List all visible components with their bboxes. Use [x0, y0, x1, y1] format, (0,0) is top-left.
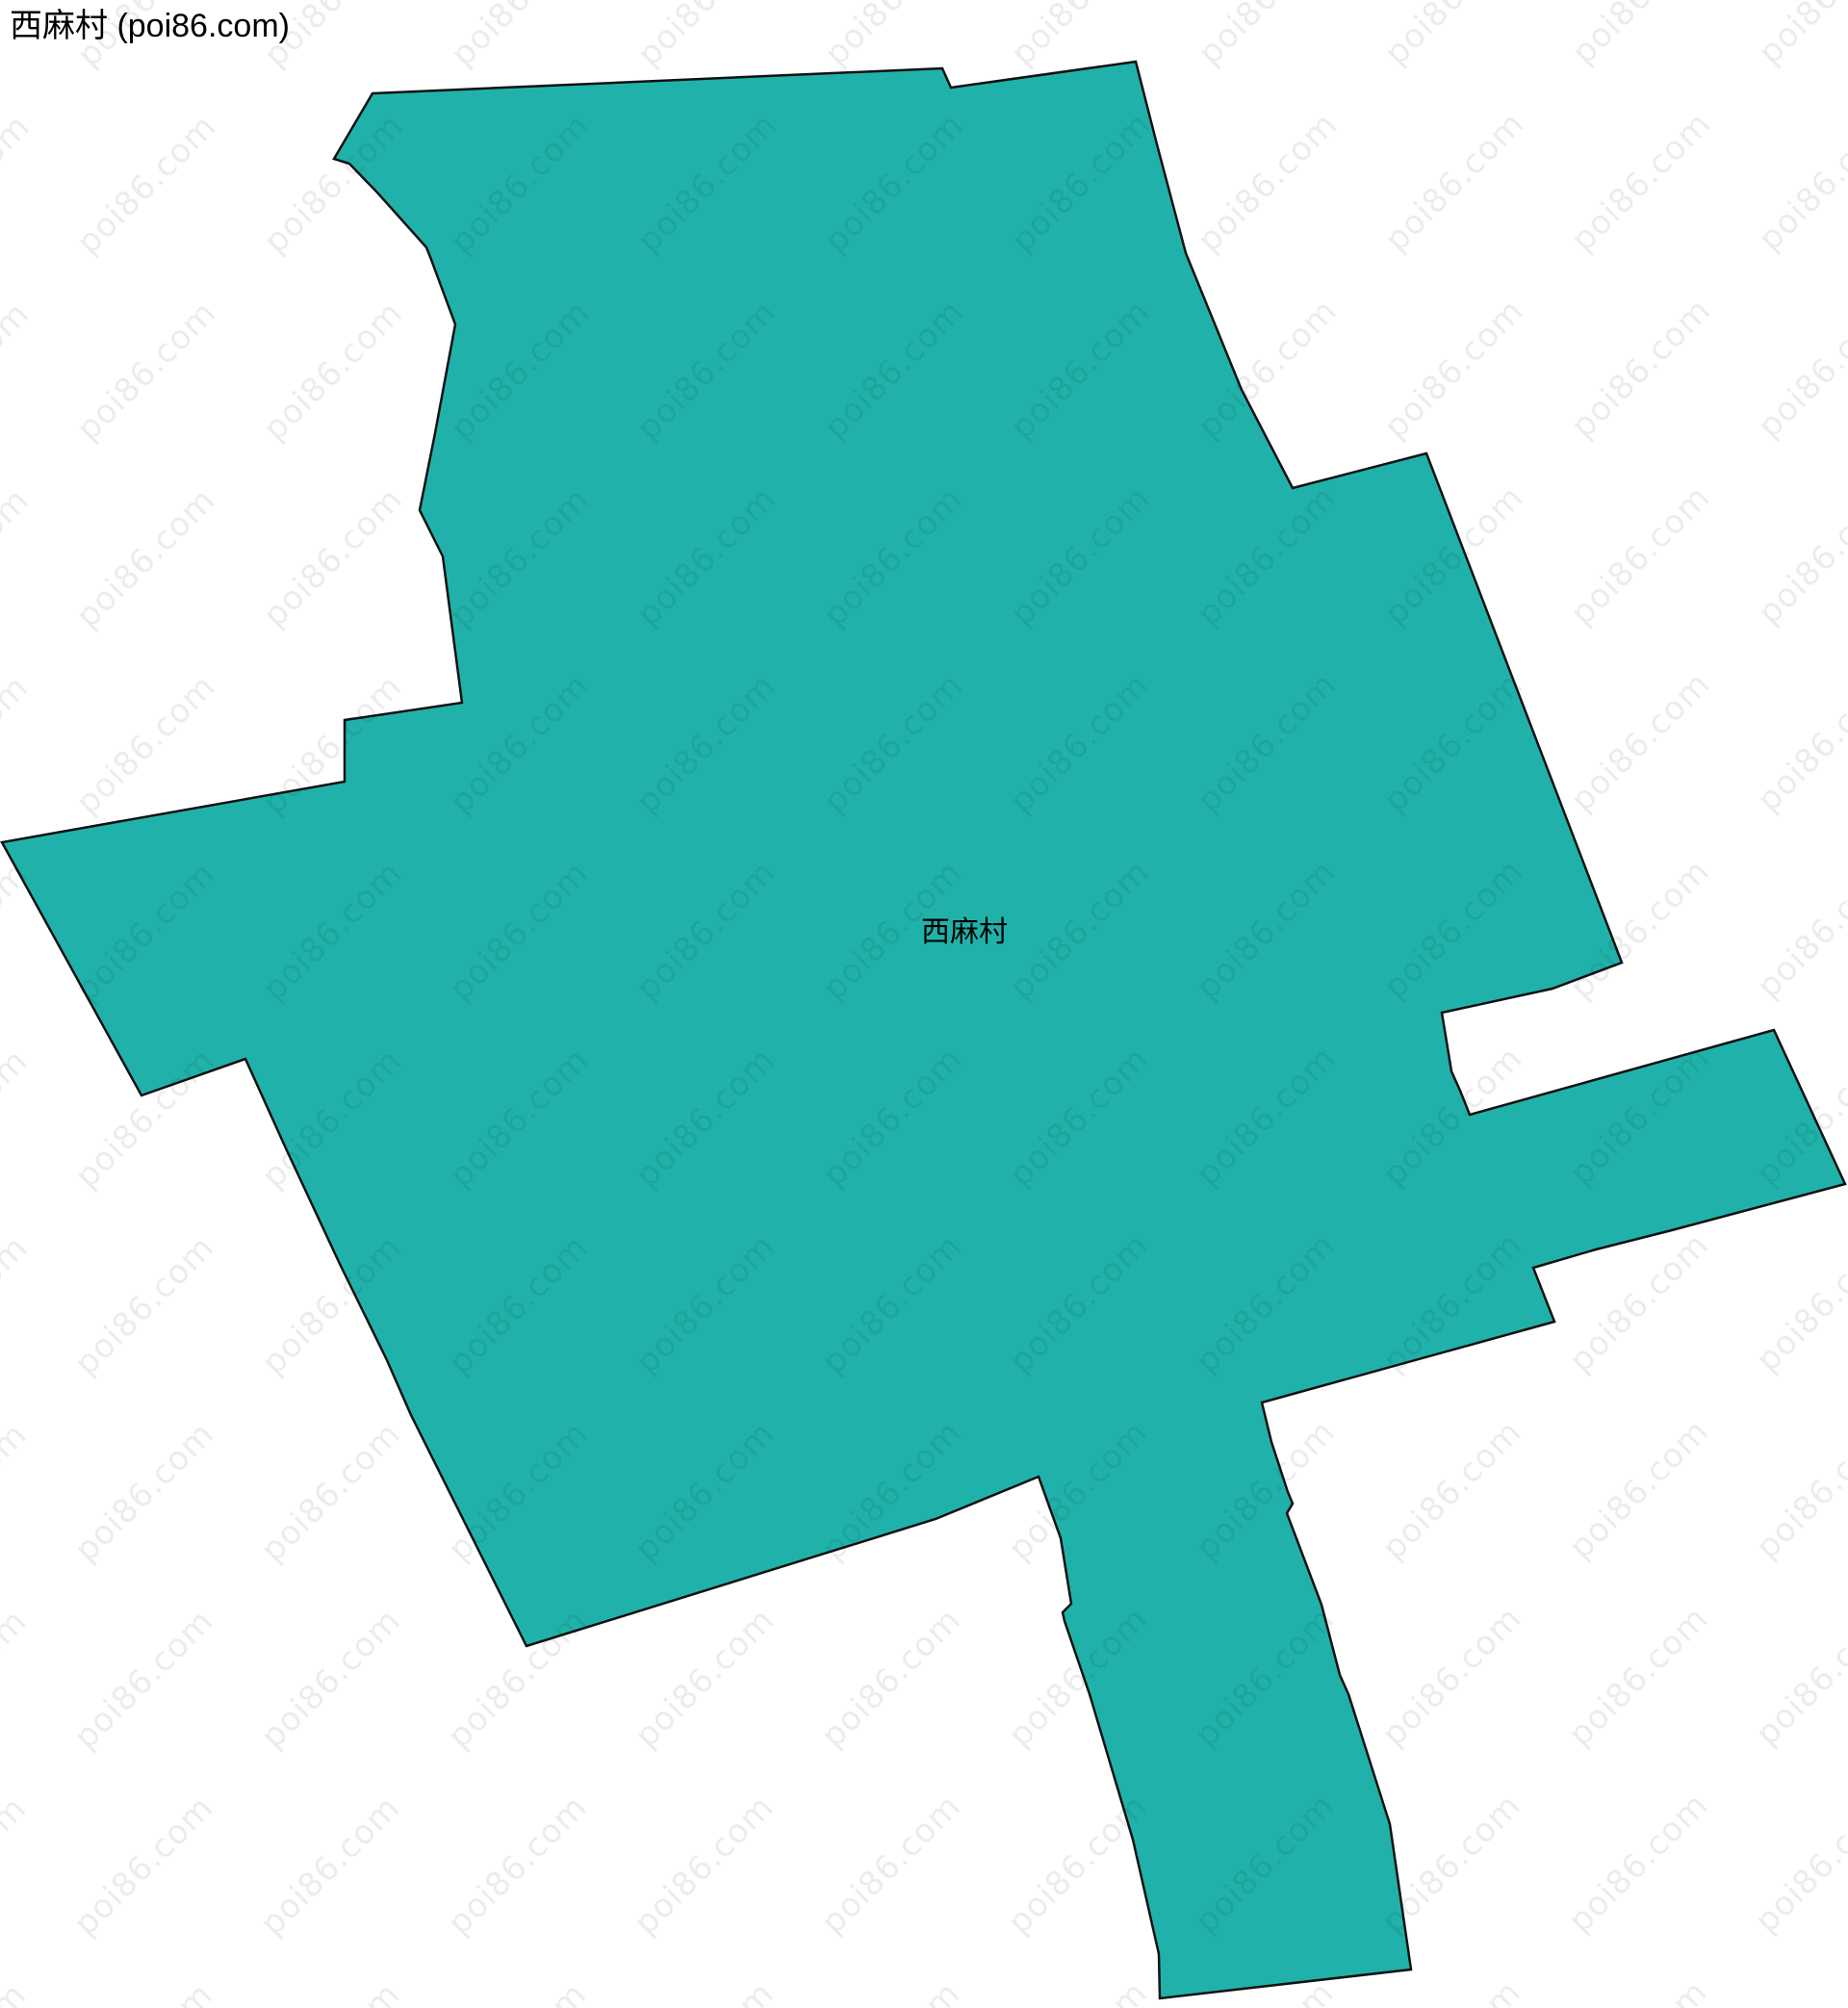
map-canvas: 西麻村 西麻村 (poi86.com) poi86.compoi86.compo… [0, 0, 1848, 2008]
village-boundary-polygon [2, 62, 1845, 1998]
page-title: 西麻村 (poi86.com) [10, 8, 290, 45]
region-map: 西麻村 [0, 0, 1848, 2008]
region-label: 西麻村 [921, 916, 1008, 948]
